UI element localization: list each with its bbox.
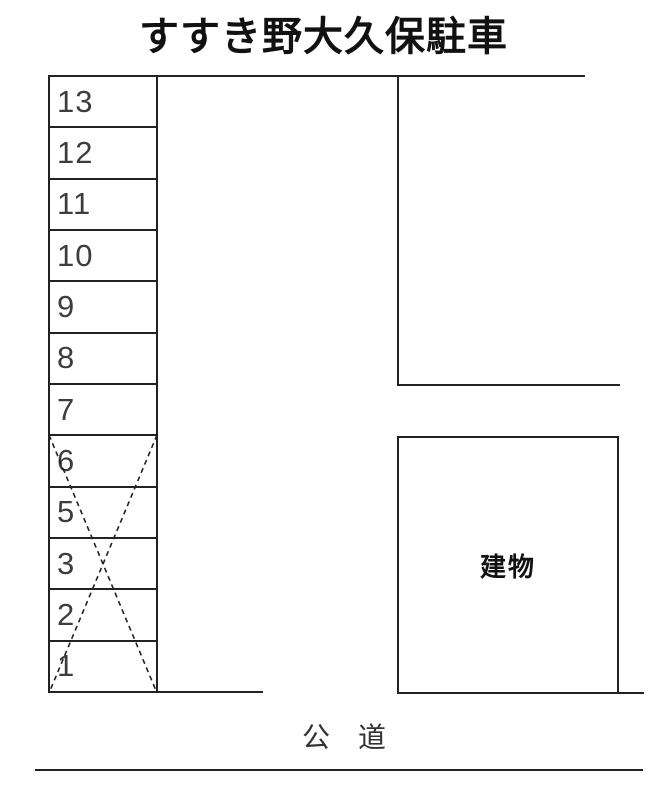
parking-space-row-13: 13: [50, 77, 156, 126]
space-number: 11: [50, 186, 91, 222]
page-title: すすき野大久保駐車: [139, 15, 508, 59]
space-number: 9: [50, 289, 75, 325]
space-number: 12: [50, 135, 93, 171]
parking-space-row-7: 7: [50, 383, 156, 434]
building-label: 建物: [480, 547, 536, 584]
parking-space-row-10: 10: [50, 229, 156, 280]
upper-right-parcel-left-line: [397, 75, 399, 386]
upper-right-parcel-bottom-line: [397, 384, 620, 386]
column-bottom-extension-line: [158, 691, 263, 693]
space-number: 10: [50, 238, 93, 274]
parking-space-row-11: 11: [50, 178, 156, 229]
parking-space-row-8: 8: [50, 332, 156, 383]
space-number: 8: [50, 340, 75, 376]
space-number: 7: [50, 392, 75, 428]
parking-space-row-12: 12: [50, 126, 156, 177]
parking-lot-diagram-page: すすき野大久保駐車 13 12 11 10 9 8 7 6 5 3: [0, 0, 670, 798]
building-bottom-extension-line: [617, 692, 644, 694]
public-road-label: 公 道: [302, 716, 386, 756]
building-box: 建物: [397, 436, 619, 694]
public-road-line: [35, 769, 643, 771]
crossed-out-x-mark: [48, 435, 158, 693]
parking-space-row-9: 9: [50, 280, 156, 331]
space-number: 13: [50, 84, 93, 120]
